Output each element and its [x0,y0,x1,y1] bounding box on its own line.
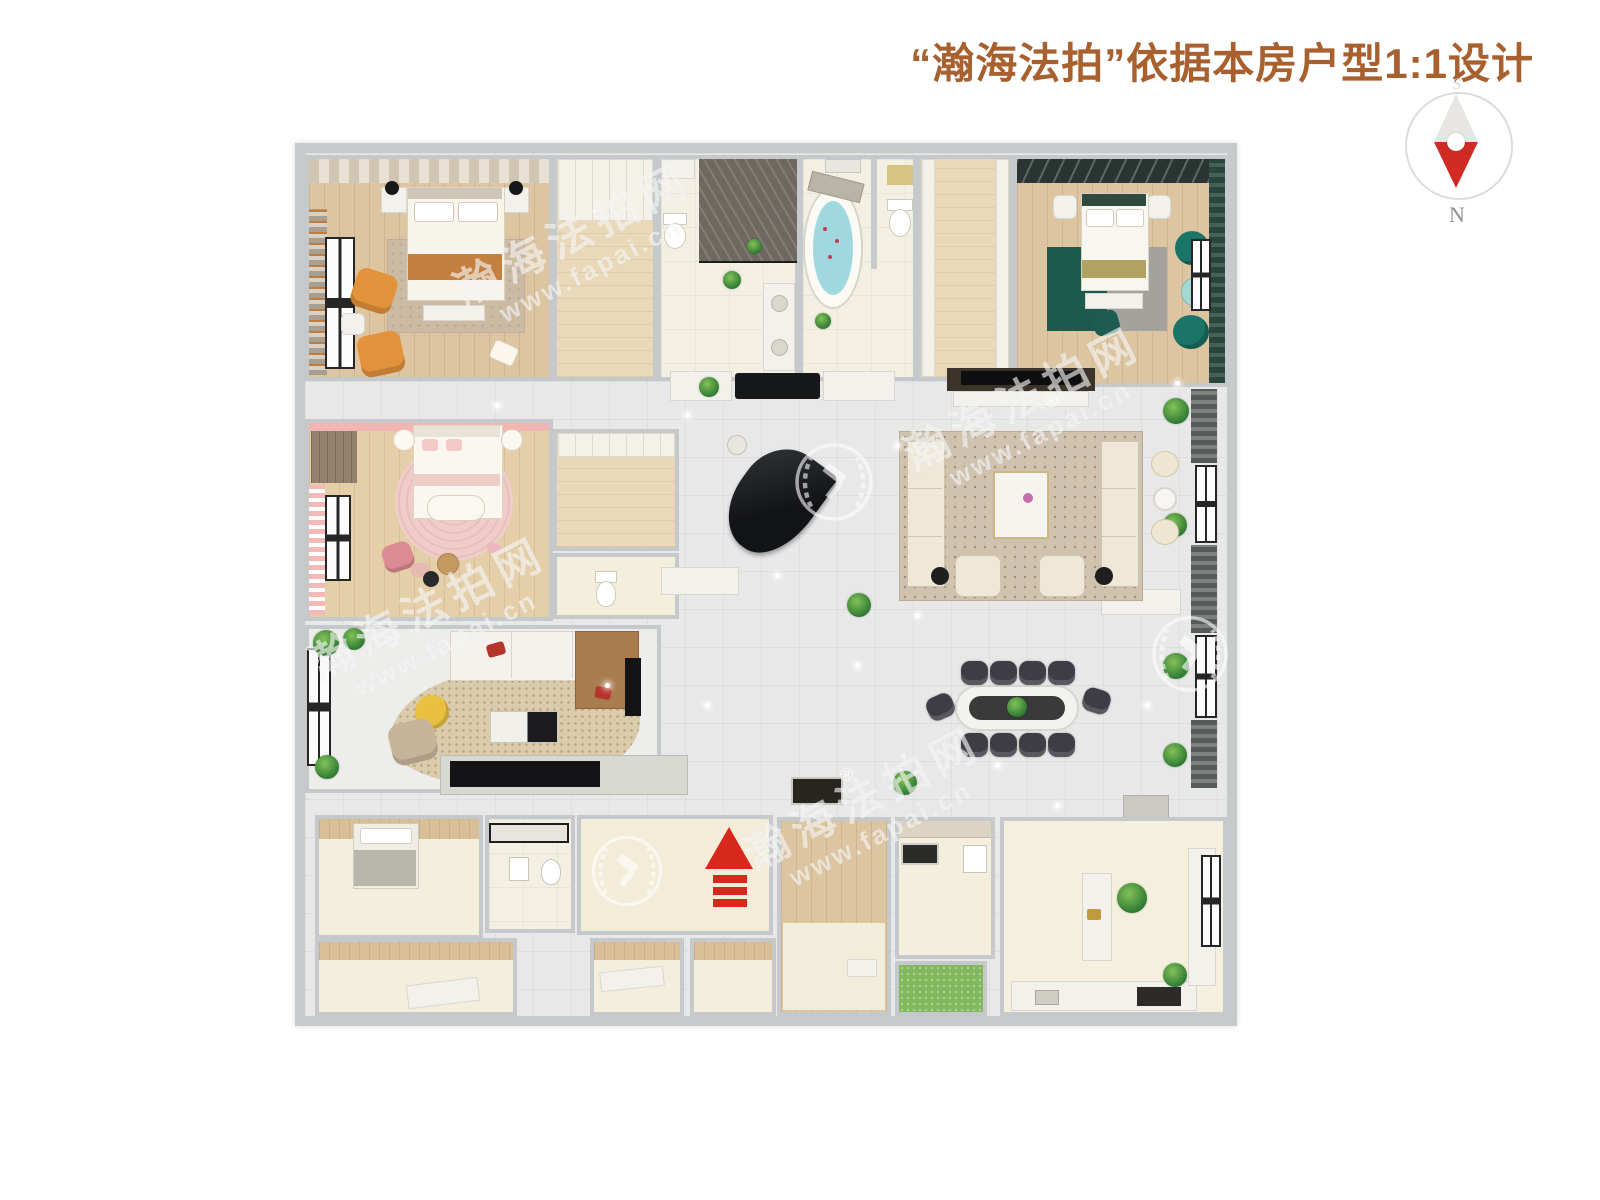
entrance-arrow-stripe [713,899,747,907]
ceiling-light [775,573,780,578]
bathtub-water [813,201,853,295]
toilet [664,223,686,249]
sink [771,295,788,312]
ceiling-light [1055,803,1060,808]
sink [771,339,788,356]
wall-art [825,159,861,173]
utility-shelf [899,821,991,838]
table-lamp [509,181,523,195]
potted-plant [1163,963,1187,987]
foyer-cabinet [823,371,895,401]
potted-plant [747,239,762,254]
headboard [414,426,500,437]
partition-wall [871,159,877,269]
potted-plant [315,755,339,779]
side-table-black [423,571,439,587]
registered-mark: ® [840,765,853,786]
side-table-wood [437,553,459,575]
utility-sink [963,845,987,873]
pillow [458,202,498,222]
fireplace-unit [791,777,843,805]
bed-single [353,823,419,889]
wardrobe-cabinets [557,159,653,221]
headboard [408,188,502,199]
red-pillow [594,686,612,701]
entrance-arrow-stripe [713,875,747,883]
ceiling-light [705,703,710,708]
tv-console [953,391,1089,407]
armchair [955,555,1001,597]
bed-throw [414,474,500,486]
potted-plant [893,771,917,795]
washing-machine [901,843,939,865]
headboard [1082,194,1146,206]
armchair-teal [1173,315,1209,349]
wardrobe-cabinets [995,159,1009,377]
ceiling-light [1175,381,1180,386]
island-tray [1087,909,1101,920]
cushion-seam [908,488,942,489]
wood-accent-wall [319,942,513,960]
pillow [414,202,454,222]
bath-mat [887,165,913,185]
coffee-table [490,711,558,743]
wardrobe-cabinets [557,433,675,457]
watermark-logo-icon [587,831,667,911]
ceiling-light [685,413,690,418]
shower-enclosure [489,823,569,843]
window [1195,465,1217,543]
nightstand [393,429,415,451]
sofa [907,441,945,587]
bed-bench [1085,293,1143,309]
bed-bench [423,305,485,321]
potted-plant [343,628,365,650]
toilet [596,581,616,607]
ceiling-light [995,763,1000,768]
piano-stool [727,435,747,455]
potted-plant [1163,398,1189,424]
flower-petal [823,227,827,231]
flower-vase [1023,493,1033,503]
marble-coffee-table [993,471,1049,539]
watermark-logo-icon [790,438,878,526]
table-plant [1007,697,1027,717]
window [1191,239,1211,311]
nightstand [1147,195,1171,219]
cooktop [1137,987,1181,1006]
bed-master [407,187,505,301]
kitchen-sink [1035,990,1059,1005]
window [307,648,331,766]
accent-ceiling [1017,159,1223,183]
room-utility [895,817,995,959]
tv [961,371,1081,385]
sofa [1101,441,1139,587]
blanket [354,850,416,886]
tea-chair [1151,519,1179,545]
compass-hub [1447,133,1465,151]
window [325,495,351,581]
wood-accent-wall [594,942,680,960]
window [1201,855,1221,947]
tv-flat [450,761,600,787]
ceiling-slats [309,159,549,183]
cushion-seam [1102,488,1136,489]
side-table-black [931,567,949,585]
curtain [1191,720,1217,788]
ceiling-light [1145,703,1150,708]
cushion-seam [511,632,512,678]
pillow [1086,209,1114,227]
flower-petal [828,255,832,259]
pillow [422,439,438,451]
potted-plant [1117,883,1147,913]
flower-petal [835,239,839,243]
bed-teal [1081,193,1149,291]
pillow [1116,209,1144,227]
entrance-arrow-stripe [713,887,747,895]
entrance-arrow-icon [705,827,753,869]
side-table-black [1095,567,1113,585]
cushion-seam [1102,536,1136,537]
armchair [1039,555,1085,597]
ceiling-light [855,663,860,668]
table-lamp [385,181,399,195]
tea-table [1153,487,1177,511]
floor-plan: 瀚海法拍网 www.fapai.cn 瀚海法拍网 www.fapai.cn 瀚海… [295,143,1237,1026]
ceiling-light [495,403,500,408]
window [325,237,355,369]
wardrobe-cabinets [921,159,935,377]
dining-chair [1048,661,1075,685]
shower-glass [699,261,797,263]
dining-chair [1019,733,1046,757]
potted-plant [313,630,339,656]
pillow [360,828,412,844]
pillow [446,439,462,451]
side-table [341,313,365,335]
room-grass-patch [895,961,987,1016]
bed-bench [427,495,485,521]
tea-chair [1151,451,1179,477]
potted-plant [815,313,831,329]
wood-accent-wall [694,942,772,960]
tv-cabinet [625,658,641,716]
sink [509,857,529,881]
console-table [735,373,820,399]
toilet [541,859,561,885]
ceiling-light [605,683,610,688]
compass-icon: S N [1395,88,1525,236]
dining-chair [1048,733,1075,757]
bench-block [847,959,877,977]
cushion-seam [572,632,573,678]
compass-north-label: N [1395,202,1519,228]
dining-chair [990,661,1017,685]
dining-chair [990,733,1017,757]
half-wall [661,567,739,595]
potted-plant [699,377,719,397]
ceiling-light [895,443,900,448]
dining-chair [961,661,988,685]
watermark-logo-icon [1147,611,1233,697]
potted-plant [847,593,871,617]
nightstand [1053,195,1077,219]
curtain [1209,159,1225,383]
toilet [889,209,911,237]
nightstand [501,429,523,451]
wardrobe-wood [311,431,357,483]
bed-throw [1082,260,1146,278]
potted-plant [1163,743,1187,767]
curtain [1191,389,1217,463]
potted-plant [723,271,741,289]
cushion-seam [908,536,942,537]
curtain [309,485,325,615]
bath-shelf [661,159,695,179]
dining-chair [1019,661,1046,685]
registered-mark: ® [1045,391,1058,412]
bed-throw [408,254,502,280]
ceiling-light [915,613,920,618]
dining-chair [961,733,988,757]
